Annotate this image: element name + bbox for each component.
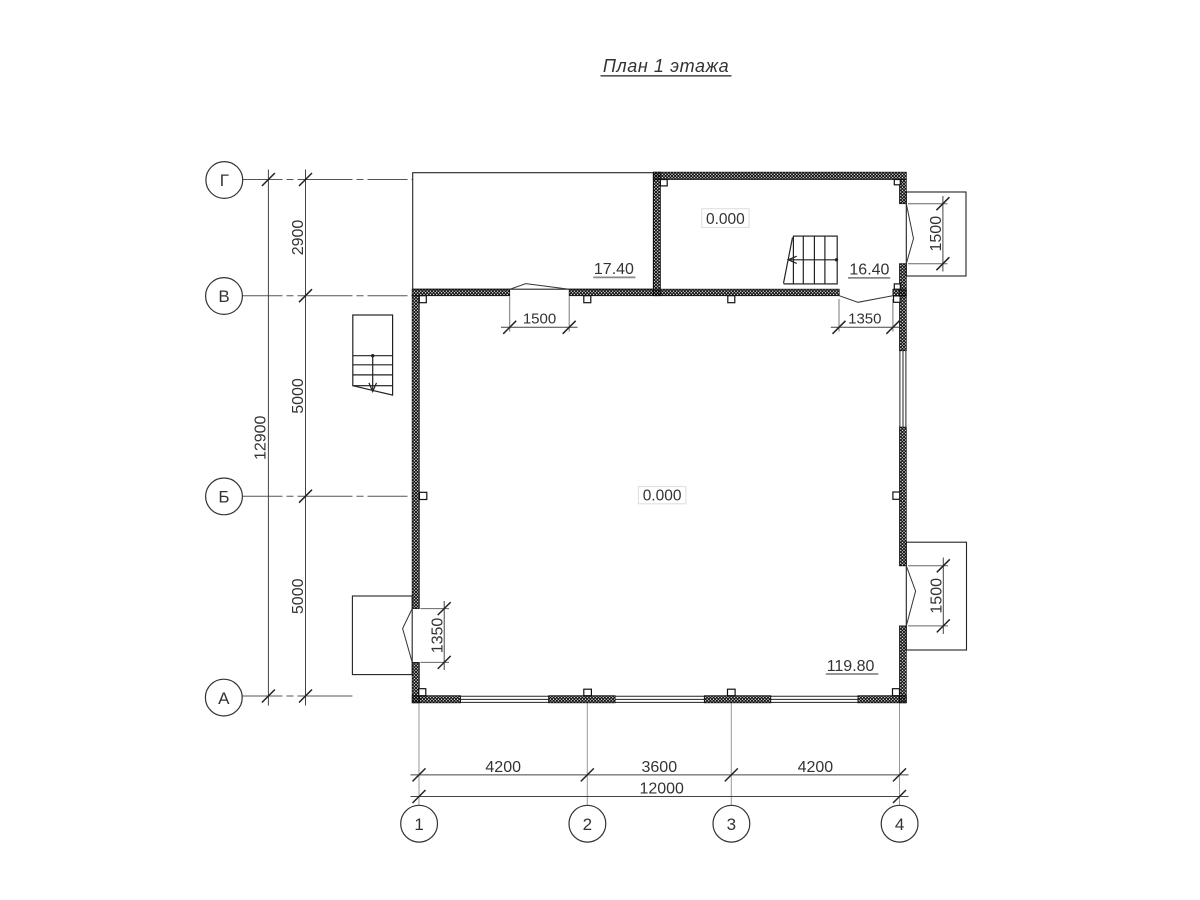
- svg-text:1500: 1500: [523, 311, 556, 328]
- svg-text:3: 3: [727, 815, 736, 834]
- svg-text:2: 2: [583, 815, 592, 834]
- svg-text:1500: 1500: [928, 578, 945, 614]
- svg-text:1: 1: [414, 815, 423, 834]
- svg-text:12000: 12000: [639, 781, 684, 798]
- svg-text:16.40: 16.40: [849, 262, 889, 279]
- svg-text:Б: Б: [218, 488, 229, 507]
- svg-text:1350: 1350: [848, 311, 881, 328]
- svg-text:4200: 4200: [485, 759, 521, 776]
- svg-text:План 1 этажа: План 1 этажа: [603, 56, 729, 76]
- svg-text:5000: 5000: [290, 578, 307, 614]
- svg-text:2900: 2900: [290, 220, 307, 256]
- svg-text:5000: 5000: [290, 378, 307, 414]
- svg-text:12900: 12900: [253, 415, 270, 460]
- svg-text:119.80: 119.80: [827, 658, 875, 675]
- svg-text:3600: 3600: [642, 759, 678, 776]
- svg-text:1350: 1350: [429, 618, 446, 654]
- svg-text:0.000: 0.000: [643, 488, 682, 505]
- svg-text:Г: Г: [220, 171, 229, 190]
- svg-text:1500: 1500: [928, 216, 945, 252]
- svg-text:В: В: [218, 287, 229, 306]
- svg-text:А: А: [218, 689, 230, 708]
- svg-text:17.40: 17.40: [594, 261, 634, 278]
- svg-text:0.000: 0.000: [706, 211, 745, 228]
- svg-text:4200: 4200: [798, 759, 834, 776]
- svg-text:4: 4: [895, 815, 904, 834]
